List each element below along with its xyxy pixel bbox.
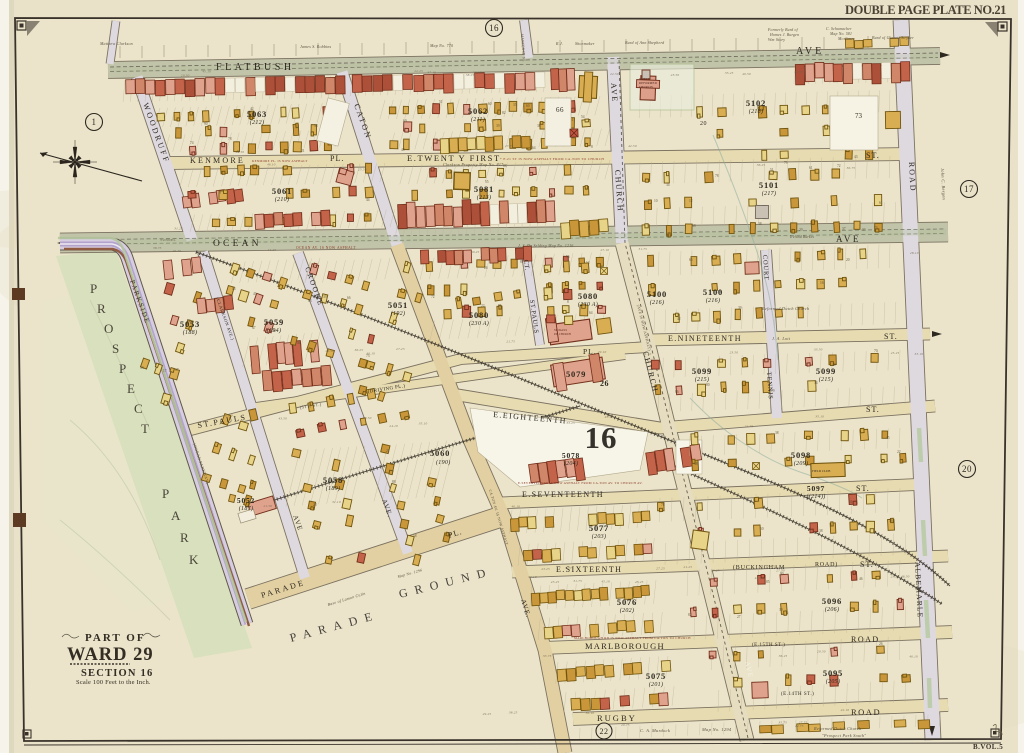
svg-text:(209): (209) bbox=[794, 460, 809, 467]
svg-text:66: 66 bbox=[556, 106, 564, 114]
svg-text:T: T bbox=[141, 421, 149, 436]
svg-text:34: 34 bbox=[770, 230, 774, 234]
svg-text:22: 22 bbox=[897, 450, 901, 454]
svg-text:20.50: 20.50 bbox=[325, 349, 334, 353]
svg-text:FIELD CLUB: FIELD CLUB bbox=[812, 469, 830, 473]
svg-text:71: 71 bbox=[666, 234, 670, 238]
svg-text:82: 82 bbox=[502, 111, 506, 115]
svg-text:37: 37 bbox=[175, 368, 179, 372]
svg-text:C. Schumacher: C. Schumacher bbox=[826, 27, 852, 31]
svg-text:((214)): ((214)) bbox=[806, 493, 825, 500]
svg-text:21: 21 bbox=[301, 149, 305, 153]
svg-text:16: 16 bbox=[585, 420, 618, 455]
svg-text:50: 50 bbox=[760, 527, 764, 531]
svg-text:35.75: 35.75 bbox=[778, 721, 787, 725]
svg-text:5052: 5052 bbox=[237, 496, 255, 505]
svg-text:Reformed Dutch Church: Reformed Dutch Church bbox=[761, 306, 809, 311]
svg-text:31.10: 31.10 bbox=[332, 500, 341, 504]
svg-text:22.50: 22.50 bbox=[610, 72, 619, 76]
svg-text:46: 46 bbox=[297, 341, 301, 345]
svg-text:25.25: 25.25 bbox=[891, 575, 900, 579]
svg-text:42.50: 42.50 bbox=[628, 144, 637, 148]
svg-text:5079: 5079 bbox=[566, 369, 586, 379]
svg-text:5095: 5095 bbox=[823, 668, 843, 678]
svg-text:James S. Robbins: James S. Robbins bbox=[300, 44, 332, 49]
svg-text:31.75: 31.75 bbox=[573, 579, 582, 583]
svg-text:ROAD: ROAD bbox=[851, 635, 880, 644]
svg-text:Map No. 770: Map No. 770 bbox=[429, 43, 453, 48]
svg-text:5100: 5100 bbox=[647, 289, 667, 299]
svg-text:MARLBOROUGH RD IS NOW ASPHALT: MARLBOROUGH RD IS NOW ASPHALT FROM CA.TO… bbox=[574, 636, 691, 640]
svg-text:26: 26 bbox=[600, 379, 609, 388]
svg-text:36.25: 36.25 bbox=[355, 348, 364, 352]
svg-text:41.10: 41.10 bbox=[643, 352, 652, 356]
svg-text:5100: 5100 bbox=[703, 287, 723, 297]
svg-text:ST.: ST. bbox=[884, 332, 898, 341]
svg-text:66: 66 bbox=[347, 296, 351, 300]
svg-text:(211): (211) bbox=[471, 116, 485, 123]
svg-text:46.10: 46.10 bbox=[909, 654, 918, 658]
svg-text:70: 70 bbox=[874, 349, 878, 353]
svg-text:(E.15TH ST.): (E.15TH ST.) bbox=[752, 643, 785, 648]
svg-text:35: 35 bbox=[513, 103, 517, 107]
svg-text:83: 83 bbox=[308, 299, 312, 303]
svg-text:5098: 5098 bbox=[791, 450, 811, 460]
svg-text:24.10: 24.10 bbox=[389, 424, 398, 428]
svg-text:44.25: 44.25 bbox=[268, 248, 277, 252]
svg-text:(215): (215) bbox=[819, 376, 834, 383]
svg-text:(192): (192) bbox=[391, 310, 406, 317]
svg-text:5075: 5075 bbox=[646, 671, 666, 681]
svg-text:5080: 5080 bbox=[469, 310, 489, 320]
svg-text:44: 44 bbox=[366, 198, 370, 202]
svg-text:P.E. CHURCH: P.E. CHURCH bbox=[554, 333, 571, 336]
svg-text:53: 53 bbox=[140, 366, 144, 370]
svg-text:16: 16 bbox=[820, 281, 824, 285]
svg-text:38.25: 38.25 bbox=[509, 711, 518, 715]
svg-text:25.25: 25.25 bbox=[816, 485, 825, 489]
svg-text:5076: 5076 bbox=[617, 597, 637, 607]
svg-text:45.10: 45.10 bbox=[601, 579, 610, 583]
svg-text:36.25: 36.25 bbox=[757, 163, 766, 167]
svg-text:K: K bbox=[189, 552, 199, 567]
svg-text:39.50: 39.50 bbox=[363, 416, 372, 420]
svg-text:20.75: 20.75 bbox=[173, 249, 182, 253]
svg-text:39: 39 bbox=[738, 306, 742, 310]
svg-text:5058: 5058 bbox=[323, 475, 343, 485]
svg-text:Scale 100 Feet to the Inch.: Scale 100 Feet to the Inch. bbox=[76, 679, 151, 686]
svg-text:46.10: 46.10 bbox=[511, 504, 520, 508]
svg-text:78: 78 bbox=[228, 137, 232, 141]
svg-text:81: 81 bbox=[498, 304, 502, 308]
svg-text:17: 17 bbox=[964, 184, 974, 194]
svg-text:C. A. Murdock: C. A. Murdock bbox=[640, 728, 671, 733]
svg-text:65: 65 bbox=[689, 258, 693, 262]
svg-text:45.75: 45.75 bbox=[604, 415, 613, 419]
svg-text:5081: 5081 bbox=[474, 184, 494, 194]
svg-text:78: 78 bbox=[661, 503, 665, 507]
svg-text:21.50: 21.50 bbox=[264, 504, 273, 508]
svg-text:PART OF: PART OF bbox=[85, 632, 146, 644]
svg-text:(E.14TH ST.): (E.14TH ST.) bbox=[781, 692, 814, 697]
svg-text:ROAD): ROAD) bbox=[815, 561, 838, 568]
svg-text:61: 61 bbox=[849, 500, 853, 504]
svg-text:26: 26 bbox=[484, 266, 488, 270]
svg-text:35.10: 35.10 bbox=[815, 414, 824, 418]
svg-text:E.SEVENTEENTH IS NOW ASPHALT F: E.SEVENTEENTH IS NOW ASPHALT FROM CA.TON… bbox=[518, 481, 643, 485]
svg-text:29.25: 29.25 bbox=[483, 712, 492, 716]
svg-text:Reformed Dutch Church: Reformed Dutch Church bbox=[813, 726, 861, 731]
svg-text:32.75: 32.75 bbox=[565, 566, 574, 570]
svg-text:20: 20 bbox=[846, 258, 850, 262]
svg-text:36: 36 bbox=[889, 519, 893, 523]
svg-text:Burd of Garrett Stryker: Burd of Garrett Stryker bbox=[872, 35, 914, 40]
svg-text:47: 47 bbox=[252, 326, 256, 330]
svg-text:MARLBOROUGH: MARLBOROUGH bbox=[585, 641, 665, 651]
svg-text:46.10: 46.10 bbox=[366, 351, 375, 355]
svg-text:24.75: 24.75 bbox=[795, 724, 804, 728]
svg-text:5080: 5080 bbox=[578, 291, 598, 301]
svg-text:28: 28 bbox=[313, 503, 317, 507]
svg-text:5101: 5101 bbox=[759, 180, 779, 190]
svg-text:29.50: 29.50 bbox=[817, 649, 826, 653]
svg-text:(203): (203) bbox=[592, 533, 607, 540]
svg-text:(194): (194) bbox=[267, 327, 282, 334]
svg-text:(210): (210) bbox=[275, 196, 290, 203]
svg-text:(213): (213) bbox=[477, 194, 492, 201]
svg-text:P: P bbox=[162, 486, 169, 501]
svg-text:39: 39 bbox=[779, 608, 783, 612]
svg-text:OCEAN: OCEAN bbox=[213, 239, 262, 249]
svg-text:"Prospect Park South": "Prospect Park South" bbox=[822, 733, 866, 738]
svg-text:51: 51 bbox=[770, 168, 774, 172]
svg-text:ROAD: ROAD bbox=[851, 707, 881, 717]
svg-text:37: 37 bbox=[842, 227, 846, 231]
svg-text:1: 1 bbox=[92, 117, 97, 127]
svg-text:5062: 5062 bbox=[468, 106, 488, 116]
svg-text:Burd of Ann Shepherd: Burd of Ann Shepherd bbox=[625, 40, 665, 45]
svg-text:Shoemaker: Shoemaker bbox=[575, 41, 595, 46]
svg-text:39: 39 bbox=[496, 124, 500, 128]
svg-text:32.50: 32.50 bbox=[794, 70, 803, 74]
svg-text:5053: 5053 bbox=[180, 319, 200, 329]
svg-text:ST.: ST. bbox=[860, 560, 874, 569]
svg-text:23.25: 23.25 bbox=[541, 567, 550, 571]
svg-text:38: 38 bbox=[314, 124, 318, 128]
svg-text:5077: 5077 bbox=[589, 523, 609, 533]
svg-text:PL.: PL. bbox=[583, 347, 597, 356]
svg-text:ST.: ST. bbox=[856, 484, 870, 493]
svg-text:82: 82 bbox=[688, 613, 692, 617]
svg-text:DOUBLE PAGE PLATE NO.21: DOUBLE PAGE PLATE NO.21 bbox=[845, 3, 1007, 17]
svg-text:20.75: 20.75 bbox=[621, 723, 630, 727]
svg-text:58: 58 bbox=[413, 534, 417, 538]
svg-text:73: 73 bbox=[855, 112, 863, 120]
svg-text:Map No. 581: Map No. 581 bbox=[829, 32, 852, 36]
svg-text:AVE: AVE bbox=[836, 234, 861, 244]
svg-text:22: 22 bbox=[481, 304, 485, 308]
svg-text:25.50: 25.50 bbox=[358, 167, 367, 171]
svg-text:J. A. Lott: J. A. Lott bbox=[772, 336, 791, 341]
svg-text:24.75: 24.75 bbox=[745, 424, 754, 428]
svg-text:38: 38 bbox=[819, 529, 823, 533]
svg-text:E.SEVENTEENTH: E.SEVENTEENTH bbox=[522, 490, 604, 499]
svg-text:AVE: AVE bbox=[609, 83, 619, 104]
svg-text:R: R bbox=[97, 301, 106, 316]
svg-text:22.10: 22.10 bbox=[841, 708, 850, 712]
svg-text:27.10: 27.10 bbox=[601, 248, 610, 252]
svg-text:54: 54 bbox=[581, 115, 585, 119]
svg-text:P: P bbox=[119, 361, 126, 376]
svg-text:29.50: 29.50 bbox=[236, 150, 245, 154]
svg-text:78: 78 bbox=[715, 174, 719, 178]
svg-text:C: C bbox=[134, 401, 143, 416]
svg-text:28.10: 28.10 bbox=[910, 251, 919, 255]
svg-text:Mortimer: Mortimer bbox=[837, 36, 855, 41]
svg-text:20: 20 bbox=[962, 464, 972, 474]
svg-text:ROAD: ROAD bbox=[907, 162, 918, 193]
svg-text:41: 41 bbox=[253, 292, 257, 296]
svg-text:25.25: 25.25 bbox=[891, 351, 900, 355]
svg-text:CHURCH: CHURCH bbox=[639, 85, 653, 89]
svg-text:45: 45 bbox=[886, 436, 890, 440]
svg-text:(218): (218) bbox=[749, 108, 764, 115]
svg-text:38: 38 bbox=[537, 124, 541, 128]
svg-text:(216): (216) bbox=[650, 299, 665, 306]
svg-text:(205): (205) bbox=[826, 678, 841, 685]
svg-text:27.75: 27.75 bbox=[799, 720, 808, 724]
svg-text:79: 79 bbox=[784, 161, 788, 165]
svg-text:5078: 5078 bbox=[562, 451, 580, 460]
svg-text:35.25: 35.25 bbox=[725, 71, 734, 75]
svg-text:31.75: 31.75 bbox=[638, 247, 647, 251]
svg-text:ST.: ST. bbox=[866, 151, 880, 160]
svg-text:8: 8 bbox=[591, 145, 593, 149]
svg-text:31.25: 31.25 bbox=[174, 226, 183, 230]
svg-text:33: 33 bbox=[862, 228, 866, 232]
svg-text:Ireland Burkes: Ireland Burkes bbox=[789, 235, 815, 239]
svg-text:(230 A): (230 A) bbox=[578, 301, 598, 308]
svg-text:(206): (206) bbox=[825, 606, 840, 613]
svg-text:OCEAN AV. IS NOW ASPHALT: OCEAN AV. IS NOW ASPHALT bbox=[296, 246, 357, 250]
svg-text:(189): (189) bbox=[326, 485, 341, 492]
svg-text:27: 27 bbox=[737, 615, 741, 619]
svg-text:(201): (201) bbox=[649, 681, 664, 688]
svg-text:34: 34 bbox=[814, 381, 818, 385]
svg-text:72: 72 bbox=[837, 164, 841, 168]
svg-text:61: 61 bbox=[809, 166, 813, 170]
svg-text:33.10: 33.10 bbox=[915, 352, 924, 356]
svg-text:* E.21 ST IS NOW ASPHALT FROM: * E.21 ST IS NOW ASPHALT FROM CA.TON TO … bbox=[500, 157, 604, 161]
svg-text:5102: 5102 bbox=[746, 98, 766, 108]
svg-text:86: 86 bbox=[675, 390, 679, 394]
svg-text:14: 14 bbox=[232, 287, 236, 291]
svg-text:(216): (216) bbox=[706, 297, 721, 304]
svg-text:42: 42 bbox=[677, 317, 681, 321]
svg-text:74: 74 bbox=[190, 141, 194, 145]
svg-text:48.50: 48.50 bbox=[901, 574, 910, 578]
svg-text:Clarkson Property Map No. 81: Clarkson Property Map No. 817 bbox=[443, 162, 504, 167]
svg-text:64: 64 bbox=[589, 311, 593, 315]
svg-text:5063: 5063 bbox=[247, 109, 267, 119]
svg-text:Map No. 1294: Map No. 1294 bbox=[701, 727, 732, 732]
svg-text:38: 38 bbox=[692, 224, 696, 228]
svg-text:22: 22 bbox=[600, 727, 609, 736]
svg-text:21.25: 21.25 bbox=[684, 565, 693, 569]
svg-text:23.50: 23.50 bbox=[730, 350, 739, 354]
svg-text:5051: 5051 bbox=[388, 300, 408, 310]
svg-text:(187): (187) bbox=[239, 505, 254, 512]
svg-text:(212): (212) bbox=[250, 119, 265, 126]
svg-text:33.50: 33.50 bbox=[814, 347, 823, 351]
svg-text:27.25: 27.25 bbox=[656, 567, 665, 571]
svg-text:AVE: AVE bbox=[796, 46, 824, 57]
svg-text:9: 9 bbox=[219, 191, 221, 195]
svg-text:8: 8 bbox=[567, 300, 569, 304]
svg-text:30.25: 30.25 bbox=[471, 250, 480, 254]
svg-text:88: 88 bbox=[503, 164, 507, 168]
svg-text:5099: 5099 bbox=[816, 366, 836, 376]
svg-text:23.50: 23.50 bbox=[671, 73, 680, 77]
svg-text:38: 38 bbox=[775, 431, 779, 435]
svg-text:45.25: 45.25 bbox=[551, 580, 560, 584]
svg-text:48: 48 bbox=[401, 148, 405, 152]
svg-text:72: 72 bbox=[431, 295, 435, 299]
svg-text:ST. PAULS: ST. PAULS bbox=[554, 329, 568, 332]
svg-text:5059: 5059 bbox=[264, 317, 284, 327]
svg-text:35.10: 35.10 bbox=[419, 421, 428, 425]
svg-text:48: 48 bbox=[694, 462, 698, 466]
svg-text:Matthew Clarkson: Matthew Clarkson bbox=[99, 41, 133, 46]
svg-text:TUNNEL: TUNNEL bbox=[160, 238, 176, 242]
svg-text:5060: 5060 bbox=[430, 448, 450, 458]
svg-text:36.10: 36.10 bbox=[586, 711, 595, 715]
svg-text:SECTION 16: SECTION 16 bbox=[81, 668, 153, 679]
svg-text:(204): (204) bbox=[564, 460, 579, 467]
svg-text:S: S bbox=[112, 341, 119, 356]
svg-text:R: R bbox=[180, 530, 189, 545]
svg-text:27.25: 27.25 bbox=[396, 347, 405, 351]
svg-text:Homes J. Burgen: Homes J. Burgen bbox=[769, 33, 799, 37]
svg-text:33.75: 33.75 bbox=[543, 654, 552, 658]
svg-text:A: A bbox=[171, 508, 181, 523]
svg-text:51: 51 bbox=[439, 100, 443, 104]
svg-text:49.50: 49.50 bbox=[742, 72, 751, 76]
svg-text:5061: 5061 bbox=[272, 186, 292, 196]
svg-text:45.10: 45.10 bbox=[202, 70, 211, 74]
svg-text:33.25: 33.25 bbox=[566, 421, 575, 425]
svg-text:36.25: 36.25 bbox=[779, 654, 788, 658]
svg-text:E: E bbox=[127, 381, 135, 396]
svg-text:27.50: 27.50 bbox=[776, 569, 785, 573]
svg-text:KENMORE PL. IS NOW ASPHALT: KENMORE PL. IS NOW ASPHALT bbox=[252, 159, 308, 163]
svg-text:B.VOL.5: B.VOL.5 bbox=[973, 743, 1003, 751]
svg-text:90: 90 bbox=[204, 122, 208, 126]
svg-text:29.10: 29.10 bbox=[598, 350, 607, 354]
svg-text:80: 80 bbox=[706, 383, 710, 387]
svg-text:36.75: 36.75 bbox=[847, 166, 856, 170]
svg-text:FLATBUSH: FLATBUSH bbox=[216, 62, 295, 73]
svg-text:(188): (188) bbox=[183, 329, 198, 336]
svg-text:85: 85 bbox=[766, 580, 770, 584]
svg-text:34: 34 bbox=[666, 183, 670, 187]
svg-text:(190): (190) bbox=[436, 459, 451, 466]
svg-text:WARD 29: WARD 29 bbox=[67, 645, 154, 665]
svg-text:39.25: 39.25 bbox=[711, 568, 720, 572]
svg-text:33.10: 33.10 bbox=[528, 575, 537, 579]
svg-text:73: 73 bbox=[874, 226, 878, 230]
svg-text:17: 17 bbox=[163, 369, 167, 373]
svg-text:J. S. De Selding Map No. 121: J. S. De Selding Map No. 1216 bbox=[518, 244, 574, 248]
svg-text:Wm Story: Wm Story bbox=[768, 37, 785, 42]
svg-text:(215): (215) bbox=[695, 376, 710, 383]
svg-text:38.75: 38.75 bbox=[153, 246, 162, 250]
svg-text:16: 16 bbox=[489, 23, 499, 33]
svg-text:60: 60 bbox=[488, 102, 492, 106]
svg-text:45.25: 45.25 bbox=[635, 580, 644, 584]
svg-text:PL.: PL. bbox=[330, 154, 344, 163]
svg-text:P: P bbox=[90, 281, 97, 296]
svg-text:RUGBY: RUGBY bbox=[597, 713, 637, 723]
svg-text:O: O bbox=[104, 321, 113, 336]
svg-text:R.J.: R.J. bbox=[555, 41, 563, 46]
svg-text:38.25: 38.25 bbox=[466, 73, 475, 77]
svg-text:20: 20 bbox=[700, 121, 707, 127]
svg-text:43.50: 43.50 bbox=[755, 576, 764, 580]
svg-text:46: 46 bbox=[859, 577, 863, 581]
svg-text:38: 38 bbox=[758, 222, 762, 226]
svg-text:69: 69 bbox=[403, 119, 407, 123]
svg-text:Formerly Burd of: Formerly Burd of bbox=[767, 28, 799, 32]
svg-text:41.50: 41.50 bbox=[224, 414, 233, 418]
svg-text:E.NINETEENTH: E.NINETEENTH bbox=[668, 334, 742, 343]
svg-text:(217): (217) bbox=[762, 190, 777, 197]
svg-text:5096: 5096 bbox=[822, 596, 842, 606]
svg-text:20.50: 20.50 bbox=[181, 73, 190, 77]
svg-text:61: 61 bbox=[879, 201, 883, 205]
svg-text:23.25: 23.25 bbox=[766, 564, 775, 568]
svg-text:22.25: 22.25 bbox=[414, 69, 423, 73]
svg-text:(202): (202) bbox=[620, 607, 635, 614]
svg-text:60: 60 bbox=[526, 104, 530, 108]
svg-text:27.75: 27.75 bbox=[505, 144, 514, 148]
svg-text:5099: 5099 bbox=[692, 366, 712, 376]
svg-text:7: 7 bbox=[315, 265, 317, 269]
svg-text:37.10: 37.10 bbox=[427, 71, 436, 75]
svg-text:64: 64 bbox=[532, 146, 536, 150]
svg-text:ST.: ST. bbox=[866, 405, 880, 414]
svg-text:29: 29 bbox=[799, 228, 803, 232]
svg-text:56: 56 bbox=[566, 255, 570, 259]
svg-text:21: 21 bbox=[386, 449, 390, 453]
svg-text:(230 A): (230 A) bbox=[469, 320, 489, 327]
svg-text:46.10: 46.10 bbox=[267, 162, 276, 166]
svg-text:88: 88 bbox=[392, 480, 396, 484]
svg-text:10: 10 bbox=[654, 199, 658, 203]
svg-text:KENMORE: KENMORE bbox=[190, 156, 245, 165]
svg-text:12: 12 bbox=[689, 199, 693, 203]
svg-text:43.50: 43.50 bbox=[278, 416, 287, 420]
svg-text:21.75: 21.75 bbox=[506, 340, 515, 344]
